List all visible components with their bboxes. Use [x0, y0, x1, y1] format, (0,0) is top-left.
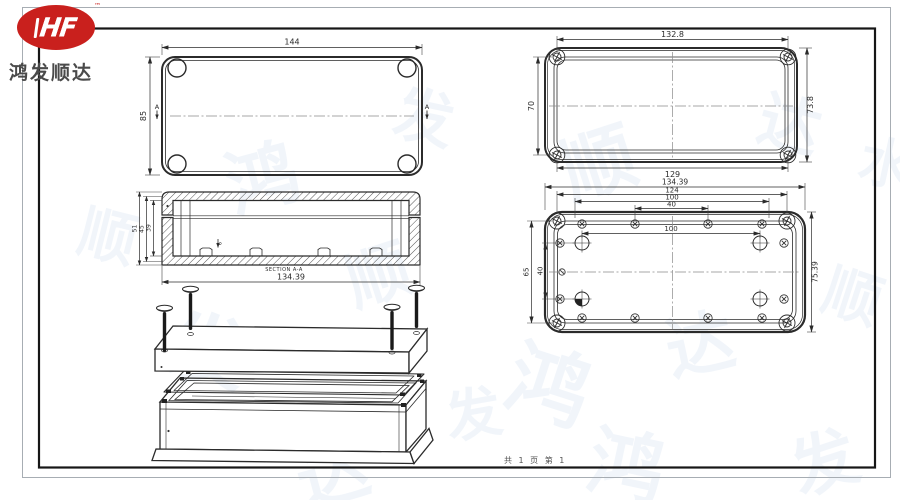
section-dim-45: 45	[139, 225, 146, 233]
base-dim-overall-w: 134.39	[662, 178, 688, 187]
lid-inner-dim-top: 132.8	[661, 30, 684, 39]
section-dim-overall: 134.39	[277, 273, 305, 282]
base-dim-65: 65	[523, 268, 531, 277]
drawing-sheet: 鸿发顺达发顺鸿达顺达鸿发顺发水	[0, 0, 900, 500]
page-info: 共 1 页 第 1	[504, 455, 566, 466]
base-dim-overall-h: 75.39	[811, 261, 820, 283]
section-dim-boss: 6	[218, 242, 224, 245]
base-small-bosses	[556, 220, 788, 322]
section-view: 6 51 45 39 SECTION A-A 134.39	[132, 192, 421, 285]
screw	[183, 286, 199, 330]
lid-inner-dim-right: 73.8	[806, 96, 815, 114]
technical-drawing: 144 85 A A	[0, 0, 900, 500]
section-dim-51: 51	[132, 225, 139, 233]
base-dim-40: 40	[667, 201, 676, 209]
lid-top-dim-width: 144	[284, 38, 299, 47]
trademark-symbol: ™	[94, 2, 101, 10]
section-marker-a-right: A	[425, 103, 430, 111]
lid-inner-view: 132.8 129 70 73.8	[527, 30, 815, 179]
company-name: 鸿发顺达	[9, 58, 93, 85]
lid-inner-dim-left: 70	[527, 101, 536, 111]
exploded-lid	[155, 326, 427, 373]
section-marker-a-left: A	[155, 103, 160, 111]
screw	[409, 285, 425, 328]
base-bottom-view: 134.39 124 100 40 100 65	[523, 178, 820, 333]
lid-top-dim-height: 85	[139, 111, 148, 121]
logo-ellipse: HF	[17, 5, 95, 50]
section-dim-39: 39	[146, 224, 153, 232]
company-logo: HF ™	[17, 5, 95, 50]
base-large-holes	[573, 234, 770, 309]
base-dim-inner-100: 100	[664, 225, 677, 233]
exploded-view	[152, 285, 433, 463]
exploded-base	[152, 377, 433, 464]
logo-mark: HF	[39, 14, 79, 40]
lid-top-view: 144 85 A A	[139, 38, 430, 176]
base-dim-left-40: 40	[537, 267, 545, 276]
sheet-frame	[23, 8, 891, 478]
